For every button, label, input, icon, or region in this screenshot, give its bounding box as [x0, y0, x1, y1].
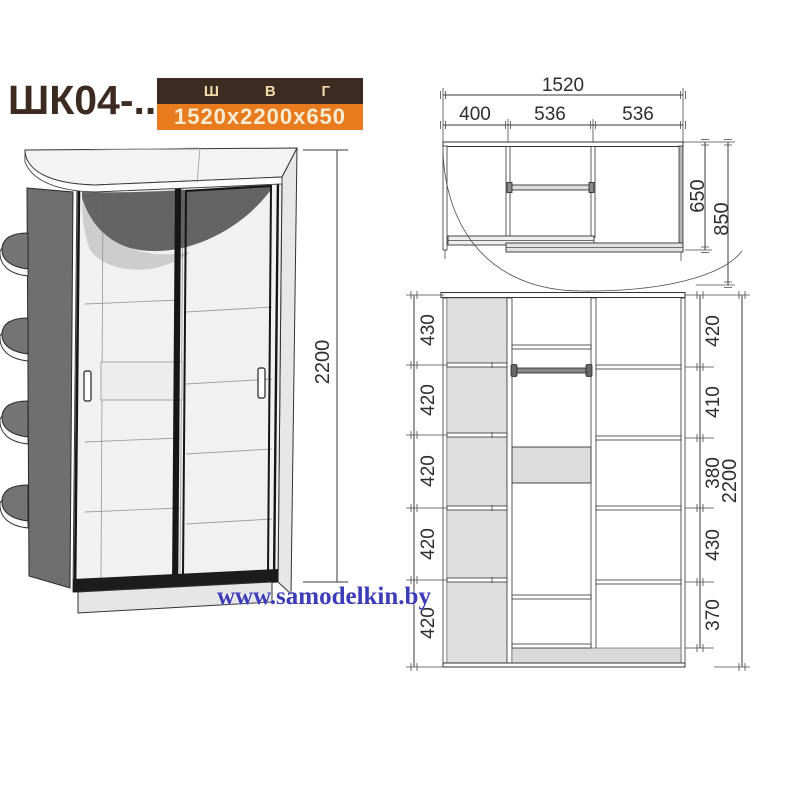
front-left-dimensions: 430 420 420 420 420: [406, 291, 447, 671]
front-left-height-label: 430: [418, 314, 439, 346]
plan-carcass: [443, 142, 683, 252]
perspective-view: 2200: [0, 130, 370, 630]
diagram-page: ШК04-.. Ш В Г 1520x2200x650: [0, 0, 800, 800]
front-view: 430 420 420 420 420 420 410 380 430 370 …: [398, 280, 800, 695]
front-left-height-label: 420: [418, 455, 439, 487]
perspective-height-label: 2200: [312, 340, 334, 385]
plan-segment-label: 536: [622, 104, 654, 125]
plan-segment-label: 400: [459, 104, 491, 125]
right-door-handle: [258, 368, 265, 398]
spec-table: Ш В Г 1520x2200x650: [157, 78, 363, 130]
spec-col-depth: Г: [322, 83, 331, 100]
plan-depth-dimensions: 650 850: [683, 140, 735, 288]
plan-width-dimensions: 1520 400 536 536: [441, 75, 686, 146]
front-right-height-label: 370: [703, 599, 724, 631]
spec-col-width: Ш: [204, 83, 219, 100]
front-right-height-label: 420: [703, 315, 724, 347]
corner-shelf: [0, 318, 28, 361]
plan-width-total-label: 1520: [542, 75, 584, 96]
watermark: www.samodelkin.by: [217, 583, 431, 611]
plan-depth-overall-label: 850: [711, 202, 733, 235]
plan-view: 1520 400 536 536: [420, 75, 800, 300]
left-door-handle: [84, 371, 91, 401]
plan-depth-body-label: 650: [687, 179, 709, 212]
right-column-shelves: [596, 365, 681, 584]
top-canopy: [25, 148, 297, 192]
plan-door-tracks: [445, 236, 683, 261]
spec-dimensions-value: 1520x2200x650: [157, 104, 363, 130]
spec-col-height: В: [265, 83, 276, 100]
front-right-height-label: 410: [703, 386, 724, 418]
plan-hanging-rod: [507, 183, 594, 193]
front-left-height-label: 420: [418, 528, 439, 560]
front-right-height-label: 430: [703, 529, 724, 561]
model-title: ШК04-..: [8, 80, 156, 121]
front-left-height-label: 420: [418, 607, 439, 639]
spec-table-header: Ш В Г: [157, 78, 363, 104]
corner-shelves: [0, 233, 28, 528]
drawer-box: [512, 447, 591, 483]
side-panel: [27, 188, 73, 588]
perspective-height-dimension: 2200: [303, 150, 348, 582]
front-left-height-label: 420: [418, 384, 439, 416]
corner-shelf: [0, 485, 28, 528]
corner-shelf: [0, 401, 28, 444]
plan-segment-label: 536: [534, 104, 566, 125]
front-total-height-label: 2200: [719, 459, 741, 504]
corner-shelf: [0, 233, 28, 276]
middle-column: [511, 345, 592, 648]
